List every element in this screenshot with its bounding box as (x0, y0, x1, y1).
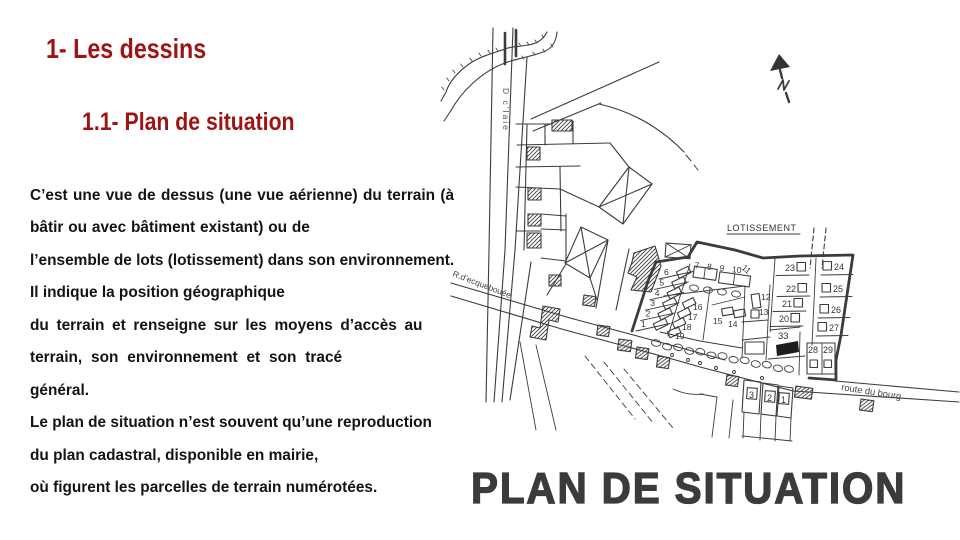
svg-text:16: 16 (693, 302, 703, 312)
svg-text:24: 24 (834, 262, 844, 272)
svg-text:28: 28 (808, 345, 818, 355)
svg-text:13: 13 (759, 307, 769, 317)
svg-text:route du bourg: route du bourg (841, 382, 902, 401)
svg-text:26: 26 (831, 305, 841, 315)
svg-text:6: 6 (664, 267, 669, 277)
svg-text:7: 7 (694, 260, 700, 270)
svg-text:15: 15 (713, 316, 723, 326)
svg-text:D c’laie: D c’laie (501, 88, 511, 132)
svg-text:3: 3 (650, 298, 655, 308)
svg-text:5: 5 (659, 277, 664, 287)
svg-text:22: 22 (786, 284, 796, 294)
svg-text:33: 33 (778, 331, 789, 342)
svg-text:14: 14 (728, 319, 738, 329)
svg-text:27: 27 (829, 323, 839, 333)
svg-text:8: 8 (707, 261, 713, 271)
svg-text:20: 20 (779, 314, 789, 324)
svg-text:23: 23 (785, 263, 795, 273)
svg-text:2: 2 (646, 309, 651, 319)
svg-text:4: 4 (655, 288, 660, 298)
svg-text:LOTISSEMENT: LOTISSEMENT (727, 223, 797, 233)
svg-text:29: 29 (823, 345, 833, 355)
svg-text:17: 17 (688, 312, 698, 322)
svg-text:25: 25 (833, 284, 843, 294)
svg-text:1: 1 (641, 319, 646, 329)
svg-text:21: 21 (782, 299, 792, 309)
